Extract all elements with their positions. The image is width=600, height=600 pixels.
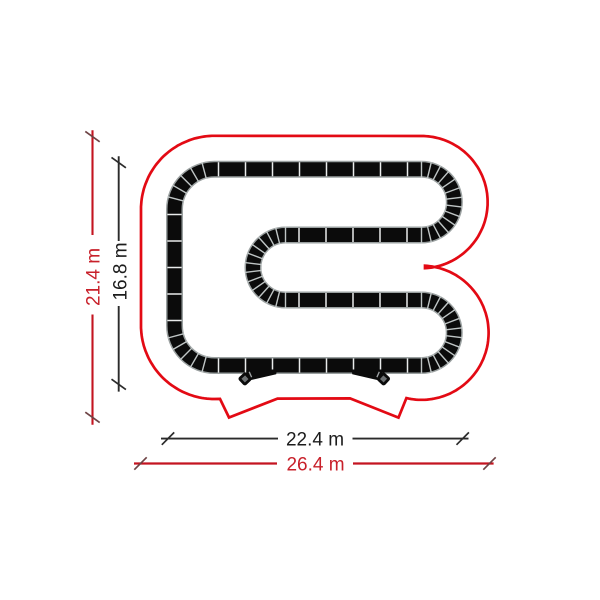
svg-text:16.8 m: 16.8 m	[110, 242, 131, 300]
svg-text:26.4 m: 26.4 m	[286, 454, 344, 475]
svg-text:21.4 m: 21.4 m	[83, 248, 104, 306]
svg-text:22.4 m: 22.4 m	[286, 429, 344, 450]
